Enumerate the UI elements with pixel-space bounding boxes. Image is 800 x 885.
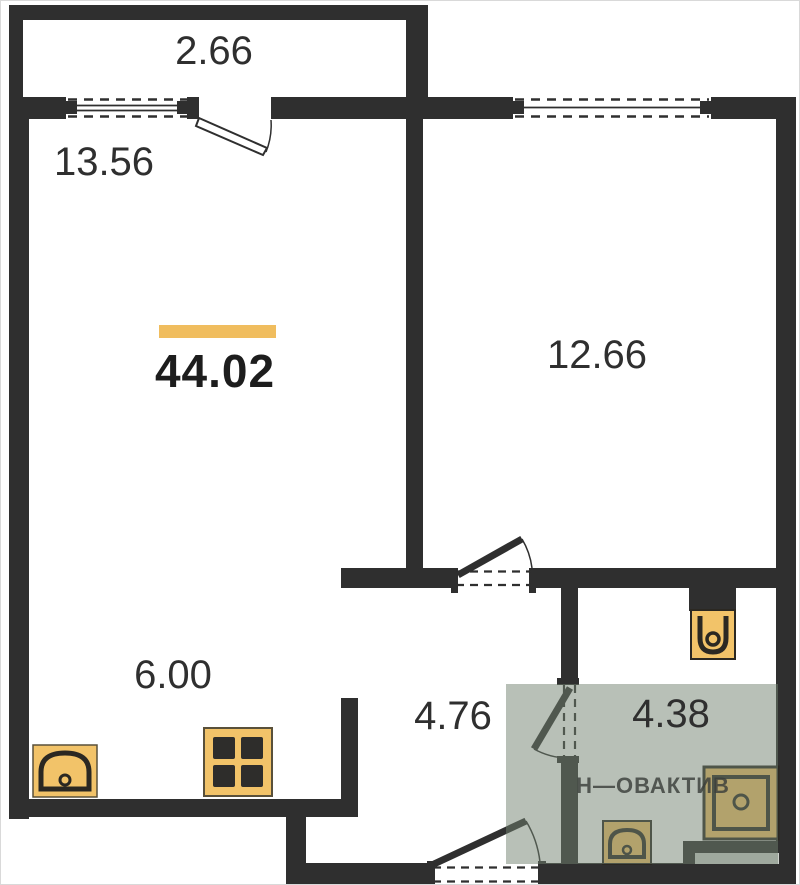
bedroom-area-label: 12.66 xyxy=(547,335,647,375)
window-symbol-left xyxy=(66,100,188,117)
kitchen-area-label: 6.00 xyxy=(134,655,212,695)
window-symbol-right xyxy=(513,100,711,117)
floor-plan-drawing xyxy=(1,1,800,885)
balcony-door-symbol xyxy=(196,118,271,155)
hallway-area-label: 4.76 xyxy=(414,696,492,736)
floor-plan: 2.66 13.56 44.02 12.66 6.00 4.76 4.38 Н—… xyxy=(0,0,800,885)
stove-icon xyxy=(204,728,272,796)
bathroom-area-label: 4.38 xyxy=(632,694,710,734)
toilet-icon xyxy=(691,610,735,659)
kitchen-sink-icon xyxy=(33,745,97,797)
watermark: Н—ОВАКТИВ xyxy=(576,773,730,799)
total-area-accent-bar xyxy=(159,325,276,338)
balcony-area-label: 2.66 xyxy=(175,31,253,71)
bedroom-door-symbol xyxy=(456,539,532,585)
total-area-label: 44.02 xyxy=(155,348,275,394)
living-room-area-label: 13.56 xyxy=(54,142,154,182)
